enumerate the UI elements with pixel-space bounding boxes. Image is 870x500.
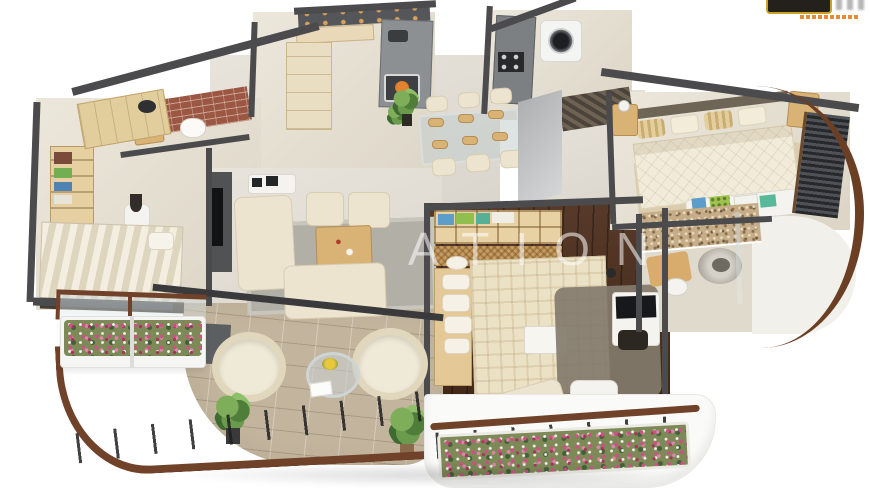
dining-chair: [465, 153, 490, 173]
pillow: [670, 114, 700, 135]
lamp: [618, 100, 630, 112]
dark-vase: [130, 194, 142, 212]
placemat: [428, 118, 444, 127]
folded-clothes-white: [54, 195, 72, 204]
brand-tagline: [800, 15, 858, 19]
placemat: [458, 114, 474, 123]
folded-clothes-blue: [54, 182, 72, 191]
dining-chair: [425, 95, 448, 112]
stove-basin: [138, 100, 156, 113]
dining-chair: [431, 157, 456, 177]
striped-pillow: [636, 118, 666, 139]
folded-clothes-green: [54, 168, 72, 178]
bed-pillow: [148, 232, 174, 250]
pillow: [442, 294, 470, 312]
toilet: [180, 118, 206, 138]
cooktop: [498, 52, 524, 72]
striped-pillow: [703, 110, 733, 131]
pillow: [442, 274, 470, 290]
wall: [206, 148, 212, 306]
ottoman: [306, 192, 344, 226]
dining-chair: [457, 91, 480, 108]
basin-bowl: [712, 258, 730, 272]
washer-door: [548, 28, 574, 54]
placemat: [492, 132, 508, 141]
brand-logo-badge: [766, 0, 832, 14]
tall-cabinet: [286, 42, 332, 130]
ground-shadow: [150, 462, 710, 488]
sink: [388, 30, 408, 42]
watermark-text: ATION: [408, 222, 675, 276]
gray-angled-wall: [518, 90, 562, 207]
ottoman: [348, 192, 390, 228]
planter-divider: [130, 316, 134, 368]
floor-plan-render: ATION: [0, 0, 870, 500]
folded-clothes-red: [54, 152, 72, 164]
placemat: [432, 140, 448, 149]
tv-screen: [212, 188, 223, 246]
dining-chair: [489, 87, 512, 104]
dark-stool: [618, 330, 648, 350]
brand-wordmark: [836, 0, 868, 10]
placemat: [488, 110, 504, 119]
media-device: [266, 176, 278, 186]
dining-plant-pot: [402, 114, 412, 126]
media-device: [252, 178, 262, 187]
placemat: [462, 136, 478, 145]
